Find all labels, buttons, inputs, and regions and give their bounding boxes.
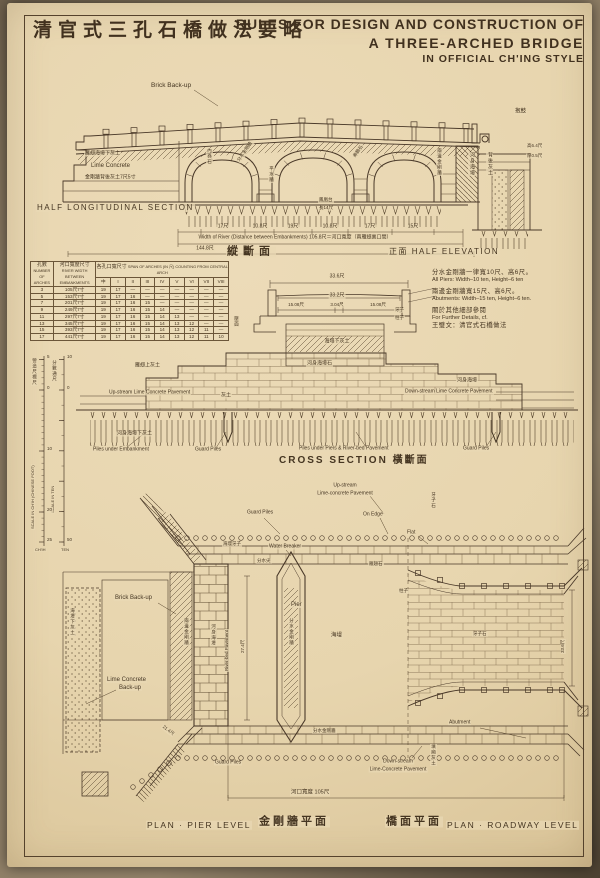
col-span-zh: 各孔口寬尺寸 — [97, 264, 127, 270]
label-zhuzi-plan: 柱子 — [398, 589, 409, 594]
photographed-drawing-page: { "title": { "zh": "清官式三孔石橋做法要略", "en1":… — [0, 0, 600, 878]
label-upstream-pavement-cs: Up-stream Lime Concrete Pavement — [108, 391, 191, 396]
label-lime-backup-2: Back-up — [118, 685, 142, 691]
dim-274: 27.4尺 — [241, 639, 246, 654]
label-pier-wall3: 分水金剛牆 — [312, 729, 337, 734]
dim-108a: 10.8尺 — [252, 225, 269, 230]
tick-r10t: 10 — [66, 355, 73, 360]
label-tianxiang-v: 填廂灰土 — [430, 744, 437, 766]
label-haiman-yazi: 海墁牙子 — [222, 542, 242, 547]
upstream-wall-band — [140, 492, 586, 564]
title-english-line3: IN OFFICIAL CH'ING STYLE — [422, 53, 584, 65]
note-line-4: Abutments: Width–15 ten, Height–6 ten. — [432, 296, 584, 303]
tick-r50: 50 — [66, 538, 73, 543]
table-row: 7201尺7寸19171615————— — [31, 300, 229, 307]
label-yamian-v: 壓面 — [233, 316, 240, 327]
label-wing-lime: 雁翅上灰土 — [134, 364, 161, 369]
label-guard-piles-cross-right: Guard Piles — [462, 447, 490, 452]
dim-17a: 17尺 — [217, 225, 230, 230]
caption-longitudinal-zh: 縱斷面 — [226, 247, 276, 258]
label-riverbed-v2: 河身海墁 — [210, 624, 217, 646]
label-abutment: Abutment — [448, 721, 471, 726]
note-line-6: For Further Details, cf. — [432, 315, 584, 322]
label-brick-backup-plan: Brick Back-up — [114, 595, 153, 601]
label-brick-backup-section: Brick Back-up — [150, 83, 192, 90]
label-riverbed-lime: 河身海墁下灰土 — [116, 432, 153, 437]
table-row: 3105尺7寸1917——————— — [31, 286, 229, 293]
label-on-edge: On Edge — [362, 513, 384, 518]
label-water-breaker: Water Breaker — [268, 545, 302, 550]
pier-plan — [244, 552, 305, 742]
col-arches-zh: 孔數 — [37, 262, 47, 268]
tick-l25: 25 — [46, 538, 53, 543]
label-riverbed-pav-v1: 河身海墁 — [468, 152, 475, 176]
ruler-zh-left: 營造尺標尺 — [31, 358, 38, 386]
label-thick-dim: 厚0.5尺 — [526, 154, 543, 159]
deck-cross-section-detail — [230, 266, 440, 366]
caption-half-longitudinal-section: HALF LONGITUDINAL SECTION — [36, 204, 195, 212]
label-pier-wall-v2: 分水金剛牆 — [288, 618, 295, 646]
tick-l0: 0 — [46, 386, 51, 391]
note-line-3: 兩邊金剛牆寬15尺、高6尺。 — [432, 288, 584, 296]
label-upstream-1: Up-stream — [332, 484, 357, 489]
dim-19: 19尺 — [287, 225, 300, 230]
label-length-dim: 長14尺 — [318, 206, 334, 211]
label-side-wall-v1: 兩邊金剛牆 — [436, 148, 443, 176]
label-wing-pavement-zh: 雁翅海墁下灰土 — [84, 152, 121, 157]
label-downstream-1: Down-stream — [382, 760, 414, 765]
left-abutment-backup — [63, 512, 228, 754]
dim-1508a: 15.08尺 — [287, 303, 305, 308]
dim-108b: 10.8尺 — [322, 225, 339, 230]
tick-l20: 20 — [46, 508, 53, 513]
arches — [185, 150, 441, 202]
dim-332: 33.2尺 — [329, 294, 346, 299]
tick-lunit: CH'IH — [34, 548, 47, 552]
dim-304: 3.04尺 — [329, 303, 344, 308]
label-haiman-plan: 海墁 — [330, 633, 343, 639]
label-lime-under-v: 海墁下灰土 — [69, 608, 76, 636]
label-arch-ring-v: 內券石 — [206, 148, 213, 165]
tick-runit: TEN — [60, 548, 70, 552]
notes-block: 分水金剛牆一律寬10尺、高6尺。All Piers: Width–10 ten,… — [432, 269, 584, 329]
ruler-en-left: SCALE IN CH'IH (CHINESE FOOT) — [31, 464, 35, 530]
dim-hekou: 河口寬度 105尺 — [290, 790, 330, 796]
label-deck-lime: 海墁下灰土 — [323, 340, 350, 345]
ruler-zh-right: 分數通尺 — [51, 360, 58, 382]
label-yazishi-v-top: 牙子石 — [430, 492, 437, 509]
arch-span-table: 孔數NUMBER OF ARCHES河口寬度尺寸RIVER WIDTH BETW… — [30, 261, 229, 341]
label-downstream-2: Lime-Concrete Pavement — [369, 768, 428, 773]
table-row: 11297尺7寸191716151413——— — [31, 313, 229, 320]
note-line-7: 王璧文：清官式石橋做法 — [432, 322, 584, 330]
piers-masonry — [257, 174, 456, 202]
label-baogu: 抱鼓 — [514, 109, 527, 115]
caption-plan-pier-en: PLAN · PIER LEVEL — [146, 821, 252, 830]
dim-17b: 17尺 — [364, 225, 377, 230]
label-downstream-pavement-cs: Down-stream Lime Concrete Pavement — [404, 390, 494, 395]
caption-plan-pier-zh: 金剛牆平面 — [258, 817, 330, 828]
table-row: 15393尺7寸1917161514131211— — [31, 327, 229, 334]
note-line-5: 關於其他細部參閱 — [432, 307, 584, 315]
table-row: 17441尺7寸191716151413121110 — [31, 334, 229, 341]
label-lime-concrete-section: Lime Concrete — [90, 163, 131, 169]
note-line-2: All Piers: Width–10 ten, Height–6 ten — [432, 277, 584, 284]
label-guard-piles-plan-top: Guard Piles — [246, 511, 274, 516]
title-english-line2: A THREE-ARCHED BRIDGE — [369, 35, 584, 51]
label-piles-piers: Piles under Piers & River-bed Pavement — [298, 447, 390, 452]
label-pingshui-v: 平水牆 — [268, 166, 275, 183]
label-guard-piles-plan-bottom: Guard Piles — [214, 761, 242, 766]
label-height-dim: 高6.4尺 — [526, 144, 543, 149]
label-lime-backup-1: Lime Concrete — [106, 677, 147, 683]
tick-l10: 10 — [46, 447, 53, 452]
label-piles-embankment: Piles under Embankment — [92, 448, 150, 453]
dim-1508b: 15.08尺 — [369, 303, 387, 308]
caption-plan-road-zh: 橋面平面 — [385, 817, 443, 828]
table-row: 13345尺7寸19171615141312—— — [31, 320, 229, 327]
label-fenghuangtai: 鳳凰台 — [318, 198, 334, 203]
note-line-1: 分水金剛牆一律寬10尺、高6尺。 — [432, 269, 584, 277]
dim-15: 15尺 — [407, 225, 420, 230]
label-huitu: 灰土 — [220, 394, 232, 399]
tick-l5: 5 — [46, 355, 51, 360]
label-zhuzi-sec: 柱子 — [394, 316, 405, 321]
label-yazishi2: 牙子石 — [472, 632, 488, 637]
dim-total-width: 144.8尺 — [195, 247, 215, 252]
table-row: 9249尺7寸1917161514———— — [31, 307, 229, 314]
label-guard-piles-cross-left: Guard Piles — [194, 448, 222, 453]
label-fenshuijian: 分水尖 — [256, 559, 272, 564]
table-header-row: 孔數NUMBER OF ARCHES河口寬度尺寸RIVER WIDTH BETW… — [31, 262, 229, 278]
downstream-wall-band — [82, 726, 584, 802]
label-yazi-sec: 牙子 — [394, 308, 405, 313]
label-backfill-v1: 背後灰土 — [486, 152, 493, 176]
dim-336-v: 33.6尺 — [561, 639, 566, 654]
plan-drawing — [28, 476, 588, 816]
label-flat: Flat — [406, 531, 416, 536]
col-width-zh: 河口寬度尺寸 — [60, 262, 90, 268]
caption-half-elevation: 正面 HALF ELEVATION — [388, 248, 500, 256]
label-upstream-2: Lime-concrete Pavement — [316, 492, 374, 497]
label-lime-backing-zh: 金剛牆背後灰土7尺5寸 — [84, 176, 137, 181]
label-yanchishi: 雁翅石 — [368, 562, 384, 567]
voussoir-ticks — [187, 153, 439, 177]
label-pier: Pier — [290, 602, 303, 608]
caption-cross-section: CROSS SECTION 橫斷面 — [278, 456, 430, 466]
label-riverbed-en-v: River-bed Pavement — [225, 629, 230, 672]
title-english-line1: RULES FOR DESIGN AND CONSTRUCTION OF — [236, 16, 584, 32]
table-row: 5153尺7寸191716—————— — [31, 293, 229, 300]
label-side-wall-v2: 兩邊金剛牆 — [183, 618, 190, 646]
piles-row — [90, 412, 574, 446]
label-riverbed-pav2: 河身海墁 — [456, 379, 478, 384]
spandrel-hatch — [78, 141, 480, 164]
dim-336-top: 33.6尺 — [329, 275, 346, 280]
tick-r0: 0 — [66, 386, 71, 391]
label-riverbed-stone: 河身海墁石 — [306, 362, 333, 367]
caption-plan-road-en: PLAN · ROADWAY LEVEL — [446, 821, 579, 830]
bottom-dimension — [228, 690, 564, 801]
dim-river-width: Width of River (Distance between Embankm… — [197, 236, 392, 241]
